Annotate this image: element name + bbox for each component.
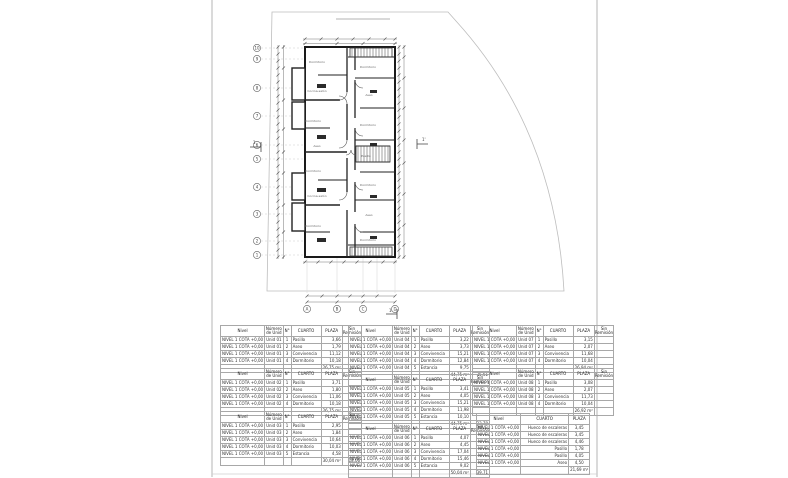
- column-header: Número de Unid: [393, 326, 411, 337]
- cell: [594, 401, 613, 408]
- cell: NIVEL 1 COTA +0,00: [349, 386, 393, 393]
- grid-bubble: A: [303, 305, 310, 312]
- cell: NIVEL 1 COTA +0,00: [349, 449, 393, 456]
- column-header: PLAZA: [321, 326, 342, 337]
- area-table-unid-04: NivelNúmero de UnidN°CUARTOPLAZASin Remi…: [348, 325, 490, 380]
- column-header: Número de Unid: [265, 326, 283, 337]
- cell: NIVEL 1 COTA +0,00: [349, 407, 393, 414]
- cell: NIVEL 1 COTA +0,00: [349, 456, 393, 463]
- cell: 3,71: [321, 380, 342, 387]
- cell: 10,03: [321, 444, 342, 451]
- cell: NIVEL 1 COTA +0,00: [477, 460, 521, 467]
- cell: NIVEL 1 COTA +0,00: [221, 387, 265, 394]
- room-label: Dormitorio: [309, 60, 325, 64]
- cell: 10,04: [573, 358, 594, 365]
- cell: 2: [283, 430, 291, 437]
- schedule-table: NivelNúmero de UnidN°CUARTOPLAZASin Remi…: [348, 325, 490, 380]
- cell: 4,45: [449, 442, 470, 449]
- cell: [393, 470, 411, 478]
- cell: Hueco de escaleras: [521, 439, 569, 446]
- cell: 1: [411, 386, 419, 393]
- cell: Aseo: [521, 460, 569, 467]
- room-label: Dormitorio: [305, 224, 321, 228]
- svg-text:B: B: [336, 307, 339, 312]
- svg-text:1: 1: [256, 253, 259, 258]
- cell: 10,18: [321, 358, 342, 365]
- cell: 2: [283, 387, 291, 394]
- cell: Unid 07: [517, 337, 535, 344]
- cell: Unid 02: [265, 401, 283, 408]
- cell: 3,41: [449, 386, 470, 393]
- cell: NIVEL 1 COTA +0,00: [473, 358, 517, 365]
- cell: NIVEL 1 COTA +0,00: [477, 446, 521, 453]
- cell: 15,21: [449, 400, 470, 407]
- cell: Convivencia: [291, 351, 321, 358]
- cell: Unid 05: [393, 414, 411, 421]
- cell: Convivencia: [543, 394, 573, 401]
- cell: Unid 04: [393, 344, 411, 351]
- cell: Unid 07: [517, 358, 535, 365]
- cell: [594, 337, 613, 344]
- cell: 1: [283, 380, 291, 387]
- schedule-table: NivelNúmero de UnidN°CUARTOPLAZASin Remi…: [220, 368, 362, 416]
- cell: 4: [535, 401, 543, 408]
- cell: 3,22: [449, 337, 470, 344]
- svg-text:D: D: [393, 307, 396, 312]
- cell: Unid 06: [393, 456, 411, 463]
- cell: Unid 03: [265, 423, 283, 430]
- svg-text:A: A: [306, 307, 309, 312]
- cell: Aseo: [543, 344, 573, 351]
- cell: NIVEL 1 COTA +0,00: [473, 337, 517, 344]
- cell: Unid 04: [393, 358, 411, 365]
- cell: 1: [411, 435, 419, 442]
- cell: 4: [283, 358, 291, 365]
- area-table-unid-08: NivelNúmero de UnidN°CUARTOPLAZASin Remi…: [472, 368, 614, 416]
- cell: 3: [411, 351, 419, 358]
- cell: NIVEL 1 COTA +0,00: [221, 380, 265, 387]
- cell: 4: [283, 444, 291, 451]
- cell: NIVEL 1 COTA +0,00: [221, 430, 265, 437]
- column-header: N°: [535, 326, 543, 337]
- cell: NIVEL 1 COTA +0,00: [477, 439, 521, 446]
- cell: 3: [535, 394, 543, 401]
- column-header: PLAZA: [449, 326, 470, 337]
- cell: Pasillo: [521, 446, 569, 453]
- cell: NIVEL 1 COTA +0,00: [349, 344, 393, 351]
- svg-text:C: C: [362, 307, 365, 312]
- cell: 4: [535, 358, 543, 365]
- cell: 4,46: [569, 439, 590, 446]
- area-table-unid-06: NivelNúmero de UnidN°CUARTOPLAZASin Remi…: [348, 423, 490, 478]
- cell: NIVEL 1 COTA +0,00: [349, 463, 393, 470]
- grid-bubble: B: [333, 305, 340, 312]
- schedule-table: NivelNúmero de UnidN°CUARTOPLAZASin Remi…: [472, 368, 614, 416]
- grid-bubble: 9: [253, 55, 260, 62]
- cell: NIVEL 1 COTA +0,00: [477, 453, 521, 460]
- column-header: CUARTO: [291, 412, 321, 423]
- column-header: N°: [411, 424, 419, 435]
- cell: Unid 03: [265, 430, 283, 437]
- cell: [594, 358, 613, 365]
- column-header: Número de Unid: [265, 369, 283, 380]
- cell: Convivencia: [419, 449, 449, 456]
- room-label: Aseo: [365, 213, 372, 217]
- room-label: Aseo: [313, 144, 320, 148]
- cell: Unid 06: [393, 449, 411, 456]
- column-header: CUARTO: [291, 326, 321, 337]
- grid-bubble: 1: [253, 251, 260, 258]
- cell: Unid 04: [393, 351, 411, 358]
- cell: 1,79: [321, 344, 342, 351]
- cell: Unid 05: [393, 393, 411, 400]
- cell: 1: [283, 337, 291, 344]
- column-header: PLAZA: [321, 412, 342, 423]
- cell: 21,69 m²: [569, 467, 590, 475]
- cell: Dormitorio: [291, 444, 321, 451]
- cell: 15,46: [449, 456, 470, 463]
- cell: NIVEL 1 COTA +0,00: [221, 337, 265, 344]
- grid-bubbles-left: 10 9 8 7 6 5 4 3 2 1: [253, 44, 260, 258]
- cell: 3: [411, 400, 419, 407]
- svg-text:4: 4: [256, 185, 259, 190]
- cell: Unid 03: [265, 451, 283, 458]
- area-table-unid-02: NivelNúmero de UnidN°CUARTOPLAZASin Remi…: [220, 368, 362, 416]
- cell: [594, 394, 613, 401]
- cell: 4,05: [569, 453, 590, 460]
- room-label: Dormitorio: [360, 238, 376, 242]
- cell: 4: [411, 358, 419, 365]
- cell: Pasillo: [291, 423, 321, 430]
- cell: 4,05: [449, 393, 470, 400]
- grid-bubble: 2: [253, 237, 260, 244]
- cell: 1: [535, 380, 543, 387]
- cell: Aseo: [419, 393, 449, 400]
- column-header: PLAZA: [573, 369, 594, 380]
- cell: Dormitorio: [419, 358, 449, 365]
- cell: NIVEL 1 COTA +0,00: [349, 414, 393, 421]
- cell: NIVEL 1 COTA +0,00: [221, 358, 265, 365]
- cell: Unid 08: [517, 401, 535, 408]
- cell: Unid 04: [393, 365, 411, 372]
- schedule-table: NivelNúmero de UnidN°CUARTOPLAZASin Remi…: [348, 374, 490, 429]
- column-header: PLAZA: [449, 375, 470, 386]
- svg-text:10: 10: [254, 46, 260, 51]
- cell: 11,12: [321, 351, 342, 358]
- svg-text:3: 3: [256, 212, 259, 217]
- cell: 5: [411, 365, 419, 372]
- cell: Unid 05: [393, 407, 411, 414]
- schedule-table: NivelNúmero de UnidN°CUARTOPLAZASin Remi…: [220, 325, 362, 373]
- svg-text:9: 9: [256, 57, 259, 62]
- column-header: Número de Unid: [393, 424, 411, 435]
- cell: Unid 07: [517, 351, 535, 358]
- cell: [419, 470, 449, 478]
- cell: Dormitorio: [419, 456, 449, 463]
- cell: Convivencia: [291, 437, 321, 444]
- cell: 11,73: [573, 394, 594, 401]
- cell: NIVEL 1 COTA +0,00: [221, 451, 265, 458]
- cell: 3: [535, 351, 543, 358]
- column-header: CUARTO: [419, 375, 449, 386]
- cell: Pasillo: [543, 337, 573, 344]
- cell: [349, 470, 393, 478]
- cell: Hueco de escaleras: [521, 432, 569, 439]
- projection-lines: [307, 257, 395, 293]
- svg-text:1': 1': [422, 137, 426, 142]
- cell: NIVEL 1 COTA +0,00: [349, 351, 393, 358]
- cell: Aseo: [543, 387, 573, 394]
- cell: 5: [411, 414, 419, 421]
- cell: 2: [411, 344, 419, 351]
- cell: Unid 03: [265, 437, 283, 444]
- column-header: CUARTO: [521, 414, 569, 425]
- cell: NIVEL 1 COTA +0,00: [349, 393, 393, 400]
- cell: NIVEL 1 COTA +0,00: [221, 423, 265, 430]
- cell: Aseo: [419, 442, 449, 449]
- column-header: CUARTO: [543, 326, 573, 337]
- column-header: Nivel: [349, 326, 393, 337]
- cell: Dormitorio: [291, 358, 321, 365]
- cell: 2,95: [321, 423, 342, 430]
- cell: Aseo: [419, 344, 449, 351]
- svg-text:7: 7: [256, 114, 259, 119]
- cell: Pasillo: [291, 380, 321, 387]
- cell: [594, 351, 613, 358]
- cell: 1,84: [321, 430, 342, 437]
- room-label: Dormitorio: [360, 123, 376, 127]
- cell: Pasillo: [291, 337, 321, 344]
- cell: 1,78: [569, 446, 590, 453]
- cell: [594, 408, 613, 416]
- cell: NIVEL 1 COTA +0,00: [473, 380, 517, 387]
- cell: Unid 07: [517, 344, 535, 351]
- section-marker-right: 1': [417, 137, 428, 149]
- cell: Unid 08: [517, 387, 535, 394]
- cell: Unid 01: [265, 337, 283, 344]
- cell: [594, 387, 613, 394]
- cell: Unid 02: [265, 394, 283, 401]
- cell: Unid 04: [393, 337, 411, 344]
- cell: Estancia: [419, 365, 449, 372]
- cell: 3: [283, 394, 291, 401]
- grid-bubble: 5: [253, 155, 260, 162]
- cell: 15,21: [449, 351, 470, 358]
- grid-bubble: 3: [253, 210, 260, 217]
- cell: [221, 458, 265, 466]
- cell: Unid 06: [393, 435, 411, 442]
- schedule-table: NivelCUARTOPLAZANIVEL 1 COTA +0,00Hueco …: [476, 413, 590, 475]
- cell: 4: [411, 456, 419, 463]
- column-header: CUARTO: [419, 424, 449, 435]
- cell: Unid 06: [393, 442, 411, 449]
- cell: 11,98: [449, 407, 470, 414]
- cell: NIVEL 1 COTA +0,00: [473, 401, 517, 408]
- column-header: Número de Unid: [517, 326, 535, 337]
- room-label: Cocina-salón: [307, 89, 326, 93]
- cell: Estancia: [419, 414, 449, 421]
- column-header: Número de Unid: [393, 375, 411, 386]
- column-header: Nivel: [221, 412, 265, 423]
- column-header: PLAZA: [569, 414, 590, 425]
- cell: Dormitorio: [291, 401, 321, 408]
- cell: 4,58: [321, 451, 342, 458]
- cell: 11,68: [573, 351, 594, 358]
- grid-bubbles-bottom: A B C D: [303, 305, 398, 312]
- cell: NIVEL 1 COTA +0,00: [477, 432, 521, 439]
- svg-text:2: 2: [256, 239, 259, 244]
- cell: 1: [535, 337, 543, 344]
- cell: 50,04 m²: [449, 470, 470, 478]
- column-header: N°: [535, 369, 543, 380]
- cell: 2: [411, 442, 419, 449]
- cell: 5: [283, 451, 291, 458]
- cell: [411, 470, 419, 478]
- drawing-sheet: Dormitorio Dormitorio Cocina-salón Aseo …: [0, 0, 788, 477]
- cell: Unid 08: [517, 380, 535, 387]
- cell: 1: [411, 337, 419, 344]
- room-label: Dormitorio: [360, 65, 376, 69]
- cell: 4,50: [569, 460, 590, 467]
- cell: Aseo: [291, 430, 321, 437]
- cell: Unid 01: [265, 351, 283, 358]
- column-header: CUARTO: [291, 369, 321, 380]
- cell: 3,15: [573, 337, 594, 344]
- area-table-stairs: NivelCUARTOPLAZANIVEL 1 COTA +0,00Hueco …: [476, 413, 590, 475]
- cell: NIVEL 1 COTA +0,00: [349, 435, 393, 442]
- cell: 10,18: [321, 401, 342, 408]
- room-label: Aseo: [365, 93, 372, 97]
- cell: [594, 344, 613, 351]
- cell: [291, 458, 321, 466]
- cell: NIVEL 1 COTA +0,00: [473, 351, 517, 358]
- cell: 1,80: [321, 387, 342, 394]
- cell: NIVEL 1 COTA +0,00: [349, 365, 393, 372]
- column-header: PLAZA: [573, 326, 594, 337]
- cell: NIVEL 1 COTA +0,00: [221, 351, 265, 358]
- cell: Dormitorio: [543, 401, 573, 408]
- cell: NIVEL 1 COTA +0,00: [477, 425, 521, 432]
- cell: Dormitorio: [419, 407, 449, 414]
- cell: Pasillo: [543, 380, 573, 387]
- column-header: Nivel: [477, 414, 521, 425]
- room-label: Dormitorio: [360, 183, 376, 187]
- cell: [521, 467, 569, 475]
- cell: Convivencia: [291, 394, 321, 401]
- column-header: N°: [283, 369, 291, 380]
- grid-bubble: 8: [253, 84, 260, 91]
- cell: 12,84: [449, 358, 470, 365]
- cell: Unid 06: [393, 463, 411, 470]
- column-header: Número de Unid: [517, 369, 535, 380]
- cell: 11,06: [321, 394, 342, 401]
- cell: 3: [411, 449, 419, 456]
- column-header: N°: [283, 412, 291, 423]
- schedule-table: NivelNúmero de UnidN°CUARTOPLAZASin Remi…: [472, 325, 614, 373]
- cell: NIVEL 1 COTA +0,00: [349, 337, 393, 344]
- cell: 3,45: [569, 425, 590, 432]
- column-header: N°: [283, 326, 291, 337]
- cell: 2,07: [573, 344, 594, 351]
- cell: 3: [283, 351, 291, 358]
- cell: NIVEL 1 COTA +0,00: [473, 387, 517, 394]
- cell: Unid 01: [265, 344, 283, 351]
- cell: [283, 458, 291, 466]
- cell: NIVEL 1 COTA +0,00: [221, 437, 265, 444]
- column-header: PLAZA: [449, 424, 470, 435]
- cell: Pasillo: [419, 435, 449, 442]
- cell: Unid 02: [265, 380, 283, 387]
- column-header: Sin Remisión: [594, 326, 613, 337]
- cell: 4: [283, 401, 291, 408]
- cell: 30,04 m²: [321, 458, 342, 466]
- column-header: Nivel: [349, 375, 393, 386]
- column-header: Nivel: [221, 369, 265, 380]
- cell: NIVEL 1 COTA +0,00: [221, 444, 265, 451]
- cell: 2: [283, 344, 291, 351]
- column-header: Número de Unid: [265, 412, 283, 423]
- cell: 4,07: [449, 435, 470, 442]
- column-header: Nivel: [221, 326, 265, 337]
- cell: 17,04: [449, 449, 470, 456]
- cell: NIVEL 1 COTA +0,00: [473, 344, 517, 351]
- cell: Unid 02: [265, 387, 283, 394]
- cell: 3,08: [573, 380, 594, 387]
- cell: 5: [411, 463, 419, 470]
- cell: 2: [535, 344, 543, 351]
- cell: Unid 01: [265, 358, 283, 365]
- svg-text:8: 8: [256, 86, 259, 91]
- grid-bubble: C: [359, 305, 366, 312]
- cell: Aseo: [291, 344, 321, 351]
- cell: 9,75: [449, 365, 470, 372]
- cell: Unid 05: [393, 386, 411, 393]
- cell: Estancia: [419, 463, 449, 470]
- area-table-unid-03: NivelNúmero de UnidN°CUARTOPLAZASin Remi…: [220, 411, 362, 466]
- cell: NIVEL 1 COTA +0,00: [349, 358, 393, 365]
- cell: Convivencia: [419, 400, 449, 407]
- column-header: CUARTO: [543, 369, 573, 380]
- cell: 2: [411, 393, 419, 400]
- cell: [594, 380, 613, 387]
- grid-bubble: 7: [253, 112, 260, 119]
- room-label: Pasillo: [361, 154, 371, 158]
- cell: 2: [535, 387, 543, 394]
- cell: Pasillo: [419, 386, 449, 393]
- cell: [477, 467, 521, 475]
- cell: 2,07: [573, 387, 594, 394]
- column-header: Nivel: [473, 326, 517, 337]
- cell: Unid 05: [393, 400, 411, 407]
- cell: NIVEL 1 COTA +0,00: [221, 394, 265, 401]
- room-label: Cocina-salón: [307, 194, 326, 198]
- cell: Pasillo: [521, 453, 569, 460]
- cell: 10,04: [573, 401, 594, 408]
- area-table-unid-05: NivelNúmero de UnidN°CUARTOPLAZASin Remi…: [348, 374, 490, 429]
- grid-bubble: 10: [253, 44, 260, 51]
- area-table-unid-01: NivelNúmero de UnidN°CUARTOPLAZASin Remi…: [220, 325, 362, 373]
- cell: Hueco de escaleras: [521, 425, 569, 432]
- cell: NIVEL 1 COTA +0,00: [221, 401, 265, 408]
- column-header: N°: [411, 375, 419, 386]
- cell: Aseo: [291, 387, 321, 394]
- schedule-table: NivelNúmero de UnidN°CUARTOPLAZASin Remi…: [348, 423, 490, 478]
- cell: 10,10: [449, 414, 470, 421]
- cell: 10,64: [321, 437, 342, 444]
- svg-text:5: 5: [256, 157, 259, 162]
- room-label: Dormitorio: [305, 119, 321, 123]
- cell: 9,02: [449, 463, 470, 470]
